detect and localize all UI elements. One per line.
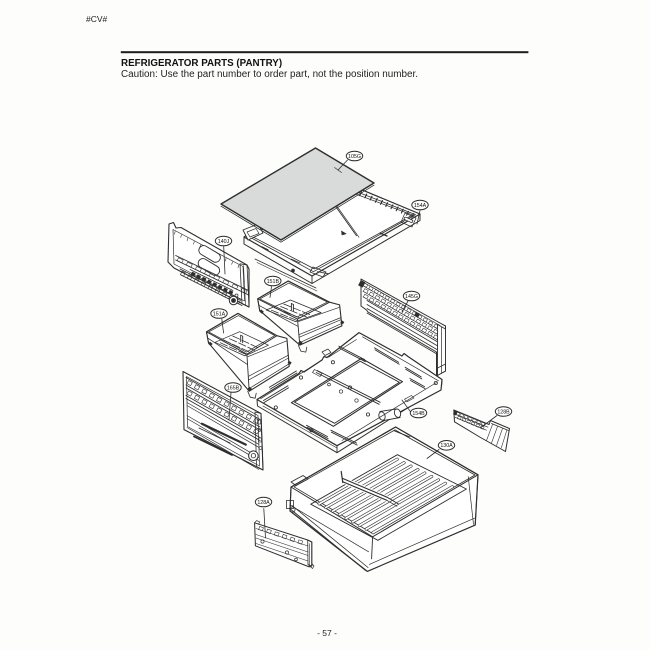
svg-text:165B: 165B (227, 385, 240, 391)
svg-text:151A: 151A (213, 311, 226, 317)
svg-text:145G: 145G (405, 294, 418, 300)
svg-text:130A: 130A (440, 443, 453, 449)
svg-text:154A: 154A (414, 203, 427, 209)
svg-text:REFRIGERATOR PARTS (PANTRY): REFRIGERATOR PARTS (PANTRY) (121, 58, 282, 69)
svg-text:Caution: Use the part number t: Caution: Use the part number to order pa… (121, 69, 418, 80)
svg-text:- 57 -: - 57 - (317, 628, 337, 638)
svg-text:154B: 154B (412, 411, 425, 417)
svg-text:140J: 140J (218, 239, 230, 245)
svg-text:128B: 128B (497, 409, 510, 415)
svg-text:105G: 105G (348, 154, 361, 160)
svg-text:151B: 151B (267, 279, 280, 285)
svg-text:#CV#: #CV# (86, 14, 108, 24)
svg-text:128A: 128A (257, 500, 270, 506)
